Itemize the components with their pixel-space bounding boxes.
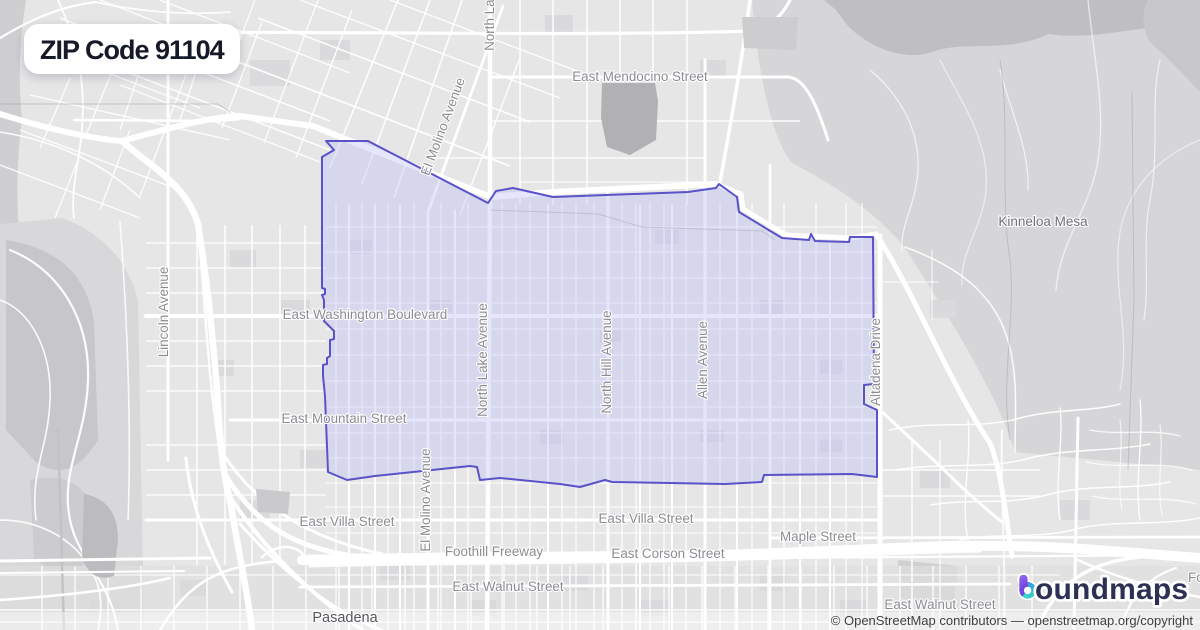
svg-text:Foothill Freeway: Foothill Freeway (445, 544, 544, 559)
svg-text:Pasadena: Pasadena (312, 610, 378, 626)
svg-text:North Hill Avenue: North Hill Avenue (599, 310, 614, 413)
svg-text:East Villa Street: East Villa Street (598, 511, 693, 526)
svg-text:East Mendocino Street: East Mendocino Street (572, 69, 708, 84)
svg-text:East Walnut Street: East Walnut Street (452, 579, 563, 594)
svg-text:Kinneloa Mesa: Kinneloa Mesa (998, 214, 1088, 229)
svg-text:East Mountain Street: East Mountain Street (281, 411, 406, 426)
svg-text:Altadena Drive: Altadena Drive (868, 318, 883, 406)
svg-text:North Lake Avenue: North Lake Avenue (482, 0, 497, 51)
svg-text:North Lake Avenue: North Lake Avenue (475, 303, 490, 417)
svg-text:© OpenStreetMap contributors —: © OpenStreetMap contributors — openstree… (831, 613, 1194, 628)
svg-text:oundmaps: oundmaps (1035, 573, 1188, 606)
svg-text:East Villa Street: East Villa Street (299, 514, 394, 529)
svg-text:El Molino Avenue: El Molino Avenue (418, 448, 433, 551)
svg-text:Lincoln Avenue: Lincoln Avenue (156, 267, 171, 358)
svg-text:East Walnut Street: East Walnut Street (884, 597, 995, 612)
svg-text:Maple Street: Maple Street (780, 529, 856, 544)
svg-text:East Washington Boulevard: East Washington Boulevard (283, 307, 448, 322)
svg-text:East Corson Street: East Corson Street (611, 546, 724, 561)
svg-text:Allen Avenue: Allen Avenue (695, 321, 710, 399)
